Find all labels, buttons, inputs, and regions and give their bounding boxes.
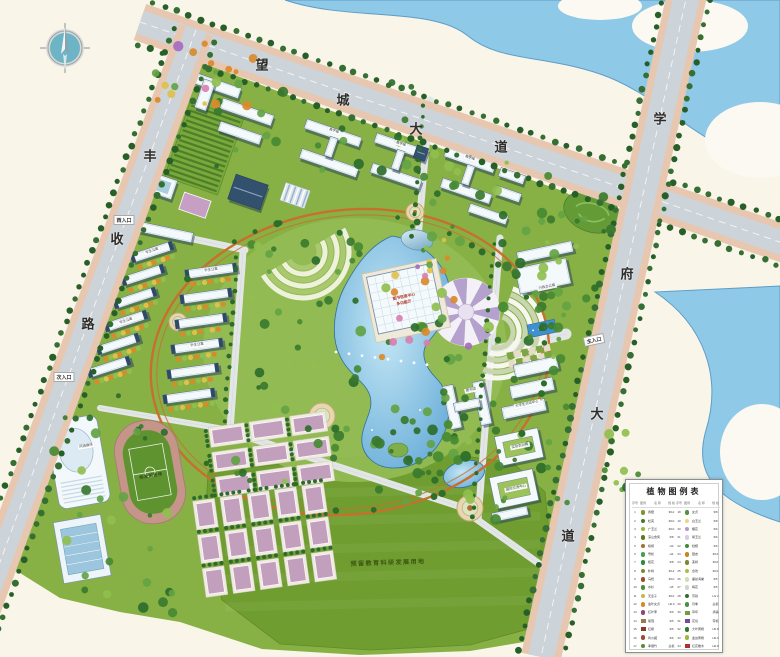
legend-row-spec: Φ10 — [711, 567, 720, 575]
plant-icon — [641, 552, 646, 557]
legend-row-icon — [682, 550, 692, 558]
legend-row-name: 苏铁 — [692, 592, 711, 600]
legend-row-name: 合欢 — [692, 567, 711, 575]
plant-icon — [685, 519, 690, 524]
legend-row-spec: H3 — [667, 542, 676, 550]
legend-row-name: 雪松 — [648, 550, 667, 558]
plant-icon — [685, 569, 690, 574]
legend-row-name: 月季 — [692, 600, 711, 608]
legend-row-spec: Φ5 — [667, 617, 676, 625]
legend-row-spec: Φ10 — [667, 525, 676, 533]
legend-row-icon — [682, 583, 692, 591]
plant-icon — [641, 627, 646, 631]
legend-row-name: 女贞 — [692, 508, 711, 516]
legend-row-name: 红花檵木 — [692, 642, 711, 650]
legend-header: 图例 — [682, 499, 692, 508]
plant-icon — [641, 585, 646, 590]
plant-icon — [641, 635, 646, 640]
legend-row-icon — [638, 600, 648, 608]
legend-row-icon — [682, 600, 692, 608]
plant-icon — [641, 527, 646, 532]
legend-row-icon — [638, 592, 648, 600]
legend-row-icon — [638, 542, 648, 550]
legend-row-icon — [638, 525, 648, 533]
legend-row-name: 桂花 — [648, 558, 667, 566]
legend-row-icon — [682, 567, 692, 575]
legend-row-spec: Φ10 — [667, 575, 676, 583]
legend-row-name: 枇杷 — [692, 542, 711, 550]
plant-icon — [685, 560, 690, 565]
plant-legend-inner: 植物图例表 序号图例名 称规 格序号图例名 称规 格1香樟Φ1218女贞Φ82杜… — [629, 483, 719, 650]
legend-row-name: 花境 — [692, 617, 711, 625]
training-hall — [53, 514, 111, 583]
compass-icon — [40, 23, 90, 73]
legend-row-icon — [638, 533, 648, 541]
legend-row-icon — [638, 517, 648, 525]
legend-row-icon — [638, 608, 648, 616]
legend-row-name: 棕榈 — [648, 542, 667, 550]
plant-icon — [641, 577, 646, 582]
legend-row-name: 银杏 — [692, 550, 711, 558]
plant-icon — [685, 644, 690, 648]
legend-row-spec: Φ12 — [711, 550, 720, 558]
legend-row-name: 草坪 — [692, 608, 711, 616]
legend-row-spec: Φ8 — [711, 517, 720, 525]
legend-row-name: 深山含笑 — [648, 533, 667, 541]
legend-row-icon — [638, 550, 648, 558]
legend-table: 序号图例名 称规 格序号图例名 称规 格1香樟Φ1218女贞Φ82杜英Φ1019… — [632, 499, 716, 650]
legend-row-spec: Φ6 — [667, 625, 676, 633]
legend-row-icon — [682, 508, 692, 516]
legend-row-name: 紫薇 — [648, 617, 667, 625]
legend-row-icon — [638, 567, 648, 575]
main-building — [362, 258, 451, 342]
plant-icon — [685, 544, 690, 549]
legend-row-name: 香樟 — [648, 508, 667, 516]
courts-lower — [192, 478, 337, 597]
legend-row-icon — [638, 583, 648, 591]
legend-row-name: 白玉兰 — [692, 517, 711, 525]
legend-row-name: 垂丝海棠 — [692, 575, 711, 583]
legend-row-name: 广玉兰 — [648, 525, 667, 533]
plant-icon — [685, 577, 690, 582]
plant-icon — [685, 552, 690, 557]
legend-row-spec: H1.2 — [711, 592, 720, 600]
legend-row-spec: H0.8 — [711, 642, 720, 650]
plant-icon — [641, 569, 646, 574]
legend-row-spec: Φ6 — [711, 542, 720, 550]
legend-row-spec: Φ10 — [667, 592, 676, 600]
legend-row-spec: H0.6 — [711, 634, 720, 642]
legend-row-icon — [638, 642, 648, 650]
legend-row-icon — [638, 617, 648, 625]
legend-row-icon — [682, 542, 692, 550]
plant-icon — [685, 602, 690, 607]
plant-icon — [685, 594, 690, 599]
plant-icon — [641, 602, 646, 607]
legend-row-spec: Φ8 — [667, 533, 676, 541]
legend-row-spec: Φ6 — [711, 533, 720, 541]
legend-title: 植物图例表 — [632, 486, 716, 497]
legend-row-icon — [682, 575, 692, 583]
legend-row-icon — [682, 525, 692, 533]
plant-icon — [685, 619, 690, 623]
legend-row-name: 红叶李 — [648, 608, 667, 616]
legend-row-name: 杜英 — [648, 517, 667, 525]
legend-row-name: 乌桕 — [648, 575, 667, 583]
legend-row-spec: Φ5 — [711, 583, 720, 591]
legend-row-spec: Φ5 — [711, 575, 720, 583]
legend-header: 规 格 — [711, 499, 720, 508]
legend-row-icon — [682, 608, 692, 616]
legend-row-name: 大叶黄杨 — [692, 625, 711, 633]
legend-row-name: 鸡爪槭 — [648, 634, 667, 642]
legend-row-spec: 带植 — [711, 617, 720, 625]
plant-icon — [641, 619, 646, 623]
legend-row-icon — [682, 517, 692, 525]
legend-row-name: 孝顺竹 — [648, 642, 667, 650]
legend-row-spec: Φ6 — [711, 525, 720, 533]
legend-row-icon — [682, 558, 692, 566]
legend-row-spec: H5 — [667, 583, 676, 591]
legend-row-name: 朴树 — [648, 567, 667, 575]
legend-row-spec: Φ8 — [667, 558, 676, 566]
legend-row-icon — [682, 642, 692, 650]
legend-row-name: 梅花 — [692, 583, 711, 591]
plant-icon — [685, 627, 690, 632]
legend-row-name: 水杉 — [648, 583, 667, 591]
legend-header: 规 格 — [667, 499, 676, 508]
legend-row-spec: Φ12 — [667, 508, 676, 516]
legend-row-spec: H0.6 — [667, 600, 676, 608]
legend-row-name: 红枫 — [648, 625, 667, 633]
plant-icon — [685, 535, 690, 540]
plant-icon — [685, 510, 690, 515]
legend-row-name: 金边黄杨 — [692, 634, 711, 642]
plant-icon — [641, 510, 646, 515]
legend-row-spec: 满铺 — [711, 608, 720, 616]
legend-header: 名 称 — [692, 499, 711, 508]
legend-row-spec: Φ6 — [667, 634, 676, 642]
legend-row-spec: H0.8 — [711, 625, 720, 633]
plant-icon — [641, 519, 646, 524]
plant-icon — [641, 594, 646, 599]
legend-row-spec: Φ8 — [711, 508, 720, 516]
legend-row-spec: Φ10 — [667, 517, 676, 525]
plant-icon — [685, 611, 690, 615]
legend-header: 图例 — [638, 499, 648, 508]
legend-row-icon — [638, 625, 648, 633]
legend-row-icon — [682, 617, 692, 625]
legend-row-name: 无患子 — [648, 592, 667, 600]
legend-row-name: 紫玉兰 — [692, 533, 711, 541]
plant-icon — [641, 610, 646, 615]
legend-row-icon — [682, 592, 692, 600]
legend-row-icon — [638, 558, 648, 566]
legend-row-spec: Φ12 — [667, 567, 676, 575]
legend-row-icon — [682, 533, 692, 541]
campus-master-plan: 望城大道丰收路学府大道西入口次入口主入口行政办公楼图书馆大学生活动中心实验实训楼… — [0, 0, 780, 657]
plant-icon — [641, 544, 646, 549]
legend-row-name: 栾树 — [692, 558, 711, 566]
legend-row-icon — [638, 508, 648, 516]
plant-icon — [641, 560, 646, 565]
legend-row-spec: 丛植 — [711, 600, 720, 608]
plant-icon — [685, 585, 690, 590]
plant-icon — [641, 535, 646, 540]
legend-row-icon — [638, 575, 648, 583]
legend-row-spec: H4 — [667, 550, 676, 558]
legend-row-spec: Φ10 — [711, 558, 720, 566]
legend-row-name: 金叶女贞 — [648, 600, 667, 608]
legend-row-spec: Φ6 — [667, 608, 676, 616]
plant-icon — [685, 527, 690, 532]
plant-icon — [641, 644, 646, 649]
legend-row-icon — [682, 625, 692, 633]
legend-row-icon — [682, 634, 692, 642]
legend-row-name: 樱花 — [692, 525, 711, 533]
legend-header: 名 称 — [648, 499, 667, 508]
legend-row-spec: 丛植 — [667, 642, 676, 650]
legend-row-icon — [638, 634, 648, 642]
plant-icon — [685, 635, 690, 640]
plant-legend-panel: 植物图例表 序号图例名 称规 格序号图例名 称规 格1香樟Φ1218女贞Φ82杜… — [625, 479, 723, 653]
